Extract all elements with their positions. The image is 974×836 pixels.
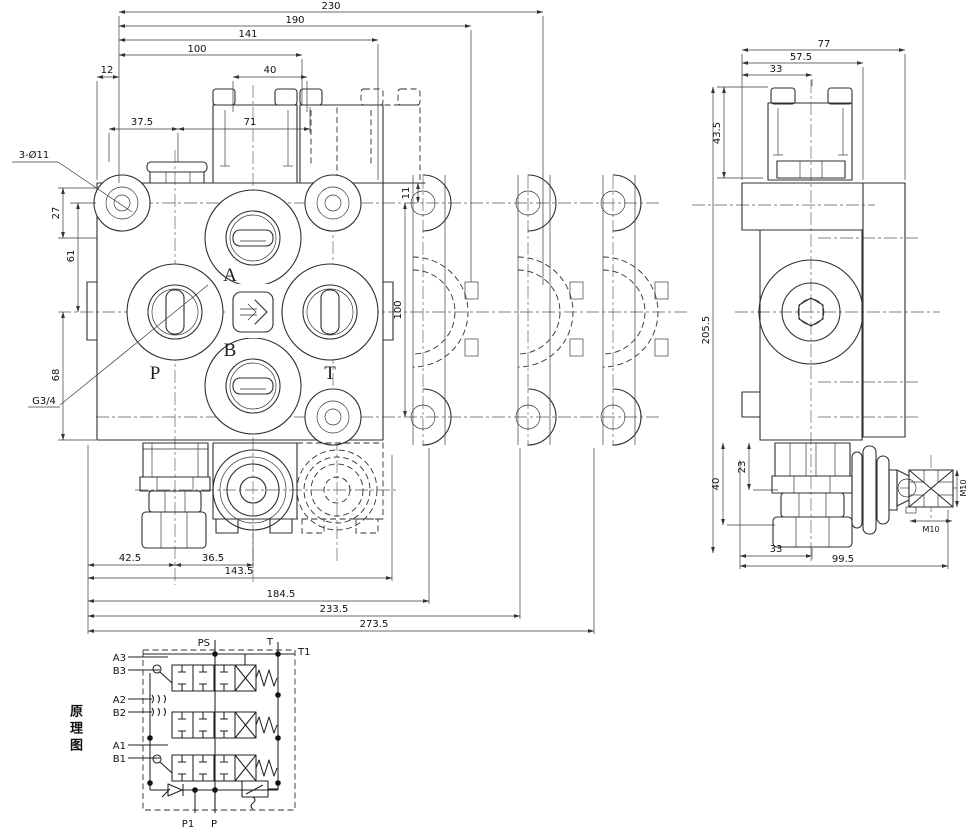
label-t: T bbox=[266, 637, 274, 648]
label-t1: T1 bbox=[297, 647, 310, 658]
dim-57-5: 57.5 bbox=[790, 52, 812, 63]
label-b3: B3 bbox=[113, 666, 126, 677]
dim-71: 71 bbox=[244, 117, 257, 128]
port-a bbox=[226, 211, 280, 265]
dim-68: 68 bbox=[51, 369, 62, 382]
port-label-a: A bbox=[223, 265, 237, 286]
dim-233-5: 233.5 bbox=[320, 604, 349, 615]
dim-205-5: 205.5 bbox=[701, 316, 712, 345]
dim-36-5: 36.5 bbox=[202, 553, 224, 564]
dim-33b: 33 bbox=[770, 544, 783, 555]
label-a3: A3 bbox=[113, 653, 126, 664]
dim-v100: 100 bbox=[393, 300, 404, 319]
port-t bbox=[303, 285, 357, 339]
dim-184-5: 184.5 bbox=[267, 589, 296, 600]
port-b bbox=[226, 359, 280, 413]
dim-100: 100 bbox=[187, 44, 206, 55]
dim-23: 23 bbox=[737, 461, 748, 474]
dim-99-5: 99.5 bbox=[832, 554, 854, 565]
label-p: P bbox=[211, 819, 217, 830]
dim-40b: 40 bbox=[711, 478, 722, 491]
label-p1: P1 bbox=[182, 819, 194, 830]
dim-33: 33 bbox=[770, 64, 783, 75]
port-label-t: T bbox=[324, 363, 336, 384]
drawing-sheet: 230 190 141 100 40 12 37.5 71 11 100 27 … bbox=[0, 0, 974, 836]
dim-12: 12 bbox=[101, 65, 114, 76]
dim-11: 11 bbox=[401, 187, 412, 200]
port-label-p: P bbox=[150, 363, 161, 384]
label-b1: B1 bbox=[113, 754, 126, 765]
dim-42-5: 42.5 bbox=[119, 553, 141, 564]
dim-40: 40 bbox=[264, 65, 277, 76]
dim-190: 190 bbox=[285, 15, 304, 26]
dim-141: 141 bbox=[238, 29, 257, 40]
dim-230: 230 bbox=[321, 1, 340, 12]
leader-p-thread: G3/4 bbox=[32, 396, 56, 407]
dim-273-5: 273.5 bbox=[360, 619, 389, 630]
label-b2: B2 bbox=[113, 708, 126, 719]
thread-m10-bottom: M10 bbox=[922, 525, 939, 534]
label-a1: A1 bbox=[113, 741, 126, 752]
label-a2: A2 bbox=[113, 695, 126, 706]
dim-61: 61 bbox=[66, 250, 77, 263]
dim-43-5: 43.5 bbox=[712, 122, 723, 144]
thread-m10-side: M10 bbox=[959, 479, 968, 496]
flow-arrow-icon bbox=[233, 292, 273, 332]
leader-bolt-holes: 3-Ø11 bbox=[19, 149, 50, 161]
dim-143-5: 143.5 bbox=[225, 566, 254, 577]
label-ps: PS bbox=[198, 638, 210, 649]
dim-77: 77 bbox=[818, 39, 831, 50]
dim-37-5: 37.5 bbox=[131, 117, 153, 128]
dim-27: 27 bbox=[51, 207, 62, 220]
port-label-b: B bbox=[224, 340, 237, 361]
schematic-title: 原理图 bbox=[66, 704, 85, 755]
drawing-canvas: 230 190 141 100 40 12 37.5 71 11 100 27 … bbox=[0, 0, 974, 836]
